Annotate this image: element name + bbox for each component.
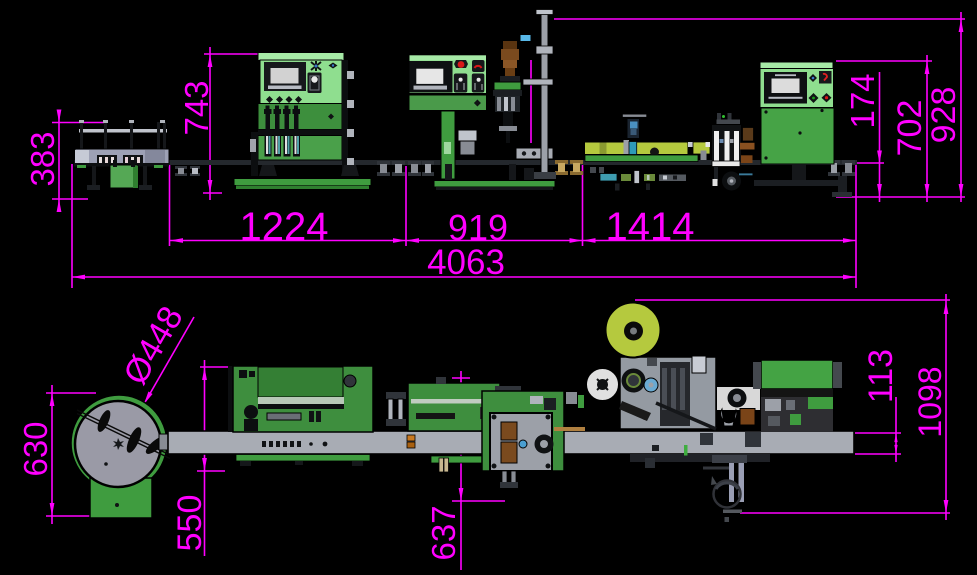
svg-text:113: 113 — [862, 349, 900, 403]
svg-text:630: 630 — [17, 421, 54, 476]
svg-text:383: 383 — [24, 131, 61, 186]
svg-text:1414: 1414 — [606, 205, 695, 249]
svg-text:1098: 1098 — [912, 366, 948, 437]
svg-text:550: 550 — [171, 495, 209, 552]
svg-text:174: 174 — [844, 73, 881, 128]
svg-text:928: 928 — [925, 87, 963, 144]
svg-text:637: 637 — [425, 505, 462, 560]
svg-text:919: 919 — [448, 207, 508, 248]
svg-text:743: 743 — [178, 80, 215, 135]
svg-text:702: 702 — [891, 100, 929, 157]
svg-text:4063: 4063 — [427, 243, 505, 282]
svg-text:1224: 1224 — [240, 205, 329, 249]
